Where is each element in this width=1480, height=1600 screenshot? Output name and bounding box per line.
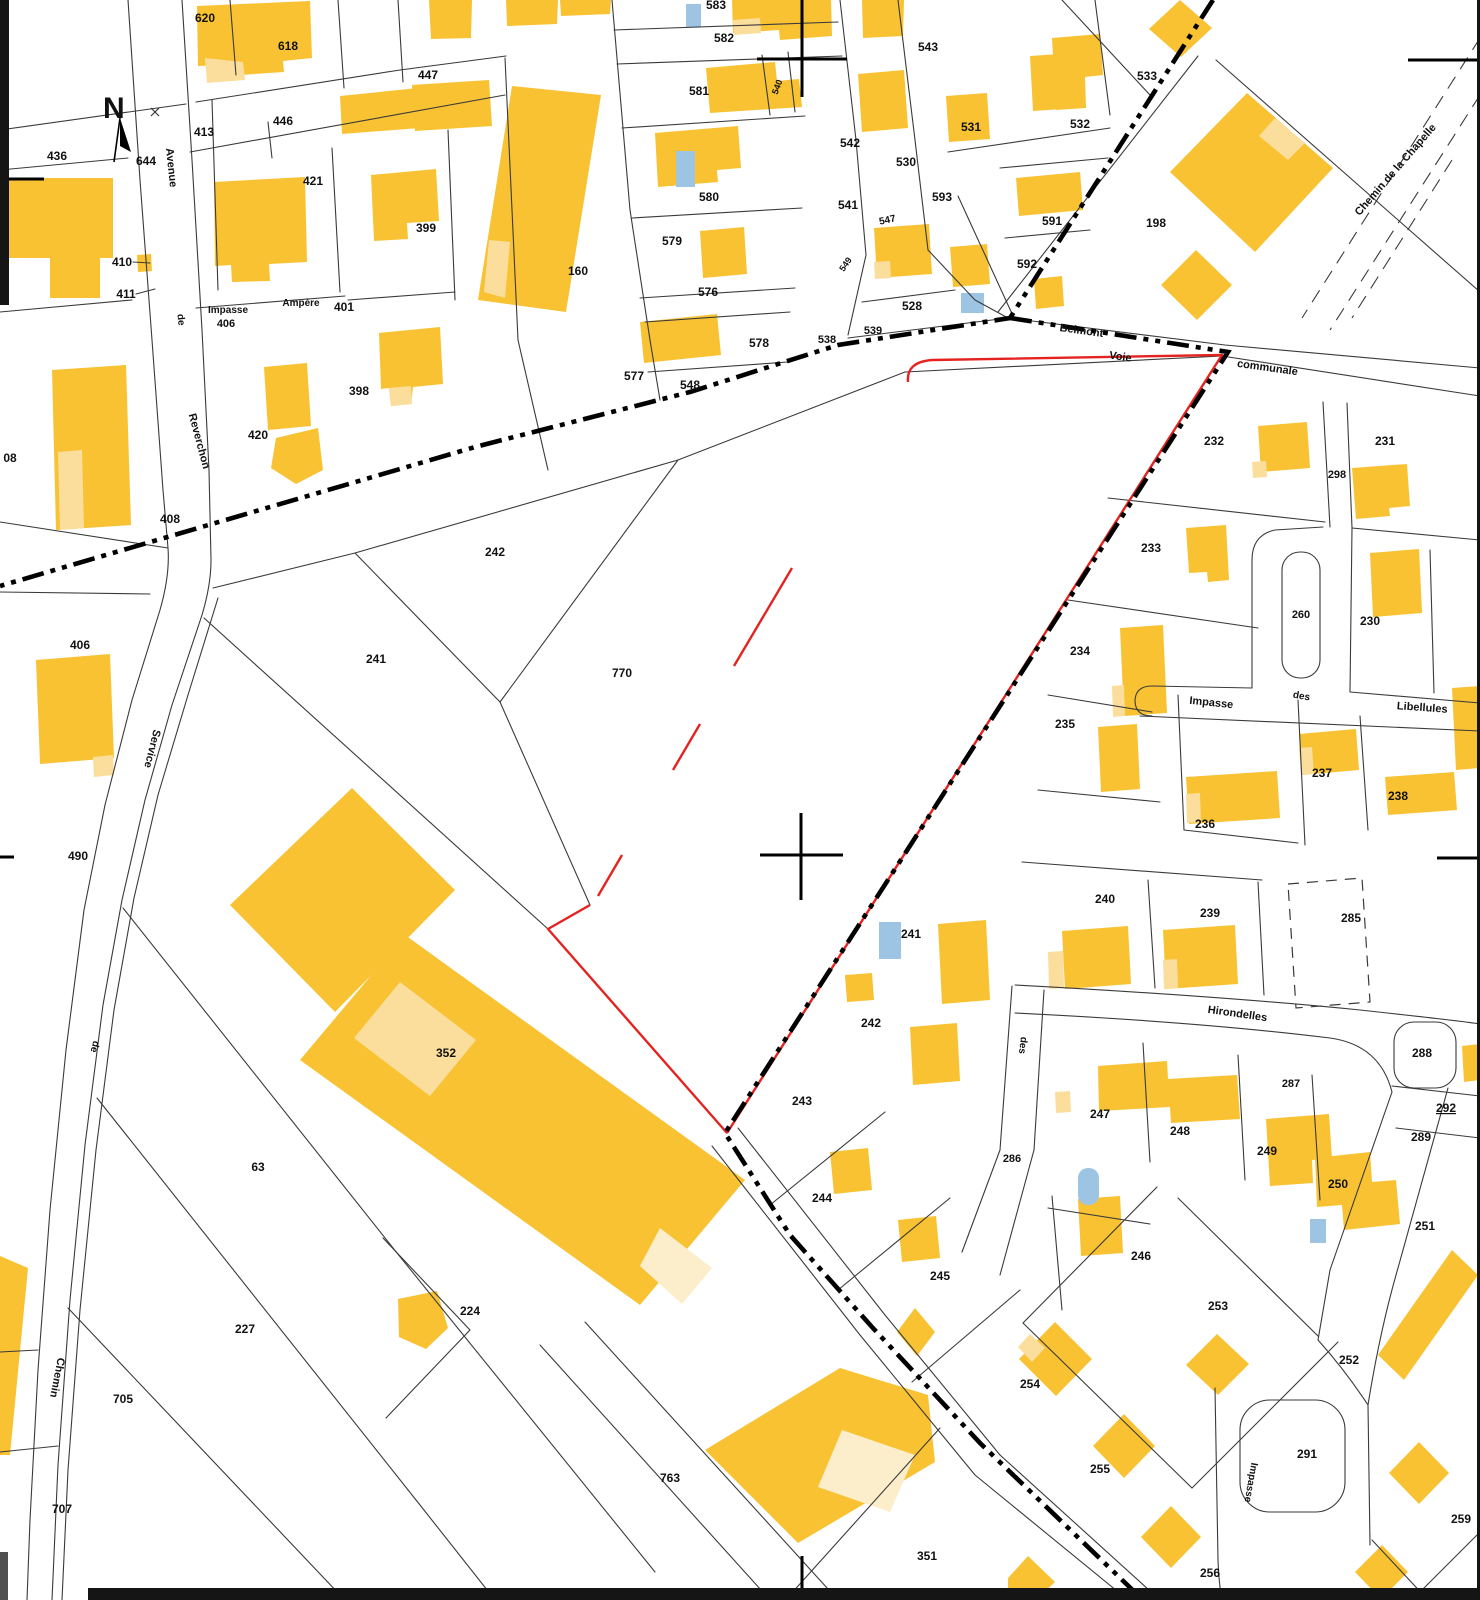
parcel-label: 235 [1055, 717, 1075, 731]
parcel-label: 230 [1360, 614, 1380, 628]
parcel-label: 237 [1312, 766, 1332, 780]
parcel-label: 579 [662, 234, 682, 248]
parcel-label: 253 [1208, 1299, 1228, 1313]
parcel-label: 243 [792, 1094, 812, 1108]
street-label: Ampère [282, 298, 320, 309]
parcel-label: 593 [932, 190, 952, 204]
parcel-label: 236 [1195, 817, 1215, 831]
parcel-label: 241 [366, 652, 386, 666]
parcel-label: 592 [1017, 257, 1037, 271]
parcel-label: 259 [1451, 1512, 1471, 1526]
parcel-label: 352 [436, 1046, 456, 1060]
parcel-label: 410 [112, 255, 132, 269]
north-label: N [103, 92, 125, 125]
parcel-label: 541 [838, 198, 858, 212]
parcel-label: 240 [1095, 892, 1115, 906]
parcel-label: 543 [918, 40, 938, 54]
street-label: communale [1236, 358, 1298, 378]
parcel-label: 231 [1375, 434, 1395, 448]
buildings-layer [0, 0, 1480, 1600]
parcel-label: 260 [1292, 609, 1310, 621]
parcel-label: 548 [680, 378, 700, 392]
parcel-label: 549 [837, 255, 854, 273]
street-label: Avenue [163, 148, 179, 188]
parcel-label: 245 [930, 1269, 950, 1283]
parcel-label: 539 [864, 325, 882, 337]
parcel-label: 255 [1090, 1462, 1110, 1476]
pool [686, 4, 701, 27]
parcel-label: 583 [706, 0, 726, 12]
street-label: Belmont [1059, 322, 1105, 340]
street-label: Voie [1108, 350, 1132, 365]
parcel-label: 198 [1146, 216, 1166, 230]
street-label: Impasse [1189, 695, 1234, 712]
parcel-label: 242 [861, 1016, 881, 1030]
parcel-label: 160 [568, 264, 588, 278]
parcel-label: 644 [136, 154, 156, 168]
parcel-label: 233 [1141, 541, 1161, 555]
parcel-label: 288 [1412, 1046, 1432, 1060]
parcel-label: 538 [818, 334, 836, 346]
street-label: de [174, 313, 186, 326]
parcel-label: 406 [70, 638, 90, 652]
parcel-label: 707 [52, 1502, 72, 1516]
parcel-label: 351 [917, 1549, 937, 1563]
parcel-label: 234 [1070, 644, 1090, 658]
street-label: des [1016, 1036, 1029, 1055]
parcel-label: 618 [278, 39, 298, 53]
parcel-label: 490 [68, 849, 88, 863]
parcel-label: 576 [698, 285, 718, 299]
parcel-label: 244 [812, 1191, 832, 1205]
parcel-label: 413 [194, 125, 214, 139]
parcel-label: 224 [460, 1304, 480, 1318]
parcel-label: 408 [160, 512, 180, 526]
parcel-label: 256 [1200, 1566, 1220, 1580]
parcel-label: 436 [47, 149, 67, 163]
parcel-label: 399 [416, 221, 436, 235]
parcel-label: 542 [840, 136, 860, 150]
street-label: Chemin de la Chapelle [1353, 122, 1439, 218]
parcel-label: 763 [660, 1471, 680, 1485]
street-label: Hirondelles [1207, 1004, 1268, 1024]
parcel-label: 547 [878, 213, 897, 227]
parcel-label: 421 [303, 174, 323, 188]
parcel-label: 401 [334, 300, 354, 314]
street-label: Impasse [208, 305, 248, 316]
parcel-label: 246 [1131, 1249, 1151, 1263]
parcel-label: 770 [612, 666, 632, 680]
parcel-label: 241 [901, 927, 921, 941]
parcel-label: 287 [1282, 1078, 1300, 1090]
parcel-label: 591 [1042, 214, 1062, 228]
parcel-label: 291 [1297, 1447, 1317, 1461]
parcel-label: 620 [195, 11, 215, 25]
parcel-label: 285 [1341, 911, 1361, 925]
parcel-label: 577 [624, 369, 644, 383]
parcel-label: 582 [714, 31, 734, 45]
parcel-label: 239 [1200, 906, 1220, 920]
parcel-label: 446 [273, 114, 293, 128]
parcel-label: 420 [248, 428, 268, 442]
parcel-label: 238 [1388, 789, 1408, 803]
parcel-label: 250 [1328, 1177, 1348, 1191]
parcel-label: 581 [689, 84, 709, 98]
parcel-label: 232 [1204, 434, 1224, 448]
street-label: Libellules [1396, 700, 1447, 716]
parcel-label: 254 [1020, 1377, 1040, 1391]
parcel-label: 298 [1328, 469, 1346, 481]
parcel-label: 406 [217, 318, 235, 330]
parcel-label: 227 [235, 1322, 255, 1336]
parcel-label: 580 [699, 190, 719, 204]
parcel-label: 578 [749, 336, 769, 350]
parcel-label: 398 [349, 384, 369, 398]
parcel-label: 289 [1411, 1130, 1431, 1144]
parcel-label: 249 [1257, 1144, 1277, 1158]
parcel-label: 447 [418, 68, 438, 82]
cadastral-map-canvas: 6206185835824475435334464135325314366445… [0, 0, 1480, 1600]
parcel-label: 08 [3, 451, 17, 465]
street-label: des [1292, 690, 1311, 704]
parcel-label: 530 [896, 155, 916, 169]
parcel-label: 248 [1170, 1124, 1190, 1138]
parcel-label: 63 [251, 1160, 265, 1174]
parcel-label: 533 [1137, 69, 1157, 83]
cadastral-map-page: 6206185835824475435334464135325314366445… [0, 0, 1480, 1600]
parcel-label: 411 [116, 287, 136, 301]
street-label: Impasse [1241, 1462, 1259, 1504]
parcel-label: 247 [1090, 1107, 1110, 1121]
street-label: Reverchon [186, 412, 212, 470]
parcel-label: 531 [961, 120, 981, 134]
parcel-label: 286 [1003, 1153, 1021, 1165]
street-label: de [88, 1040, 102, 1054]
parcel-label: 252 [1339, 1353, 1359, 1367]
parcel-label: 242 [485, 545, 505, 559]
parcel-label: 528 [902, 299, 922, 313]
parcel-label: 251 [1415, 1219, 1435, 1233]
parcel-label: 292 [1436, 1101, 1456, 1115]
parcel-label: 532 [1070, 117, 1090, 131]
parcel-label: 705 [113, 1392, 133, 1406]
